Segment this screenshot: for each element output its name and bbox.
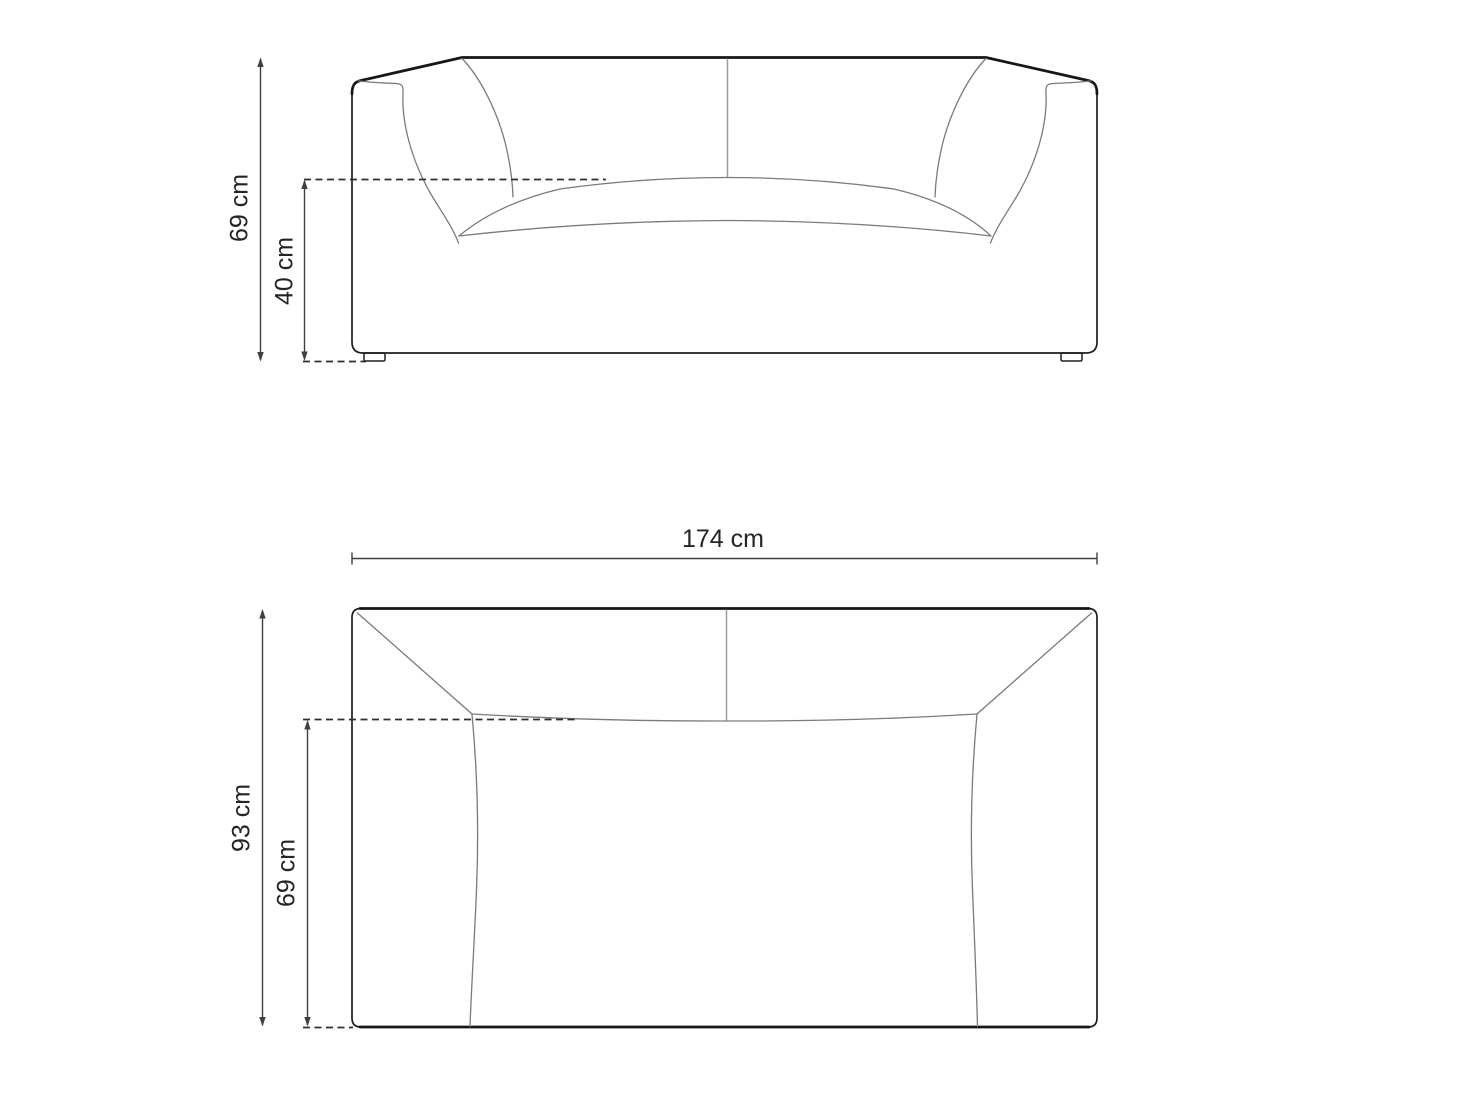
top-overall-depth-label: 93 cm: [228, 784, 256, 852]
front-sofa-top-edge: [352, 58, 1097, 95]
front-seat-height-arrow-bottom: [301, 352, 307, 362]
width-label: 174 cm: [682, 525, 764, 553]
front-right-foot: [1061, 353, 1082, 361]
front-sofa-outline: [352, 58, 1097, 354]
top-sofa-outline: [352, 609, 1097, 1028]
front-left-back-seam: [462, 59, 513, 198]
top-overall-depth-dimension: 93 cm: [228, 609, 266, 1027]
front-seat-front-curve: [459, 221, 991, 237]
front-overall-height-arrow-bottom: [257, 352, 263, 362]
diagram-svg: 69 cm 40 cm 174 cm: [0, 0, 1477, 1108]
front-overall-height-arrow-top: [257, 58, 263, 68]
front-left-foot: [364, 353, 385, 361]
top-seat-depth-label: 69 cm: [273, 839, 301, 907]
front-view: 69 cm 40 cm: [226, 58, 1097, 362]
top-left-corner-diagonal: [358, 613, 473, 714]
front-seat-height-label: 40 cm: [271, 237, 299, 305]
top-seat-depth-arrow-top: [304, 720, 310, 730]
front-right-back-seam: [935, 59, 986, 198]
sofa-dimension-diagram: 69 cm 40 cm 174 cm: [0, 0, 1477, 1108]
top-seat-depth-arrow-bottom: [304, 1017, 310, 1027]
front-seat-top-curve: [459, 178, 991, 237]
top-overall-depth-arrow-top: [259, 609, 265, 619]
top-left-seat-side: [470, 714, 478, 1027]
front-overall-height-dimension: 69 cm: [226, 58, 264, 362]
front-overall-height-label: 69 cm: [226, 174, 254, 242]
front-seat-height-dimension: 40 cm: [271, 180, 308, 362]
top-view: 93 cm 69 cm: [228, 609, 1097, 1028]
top-right-seat-side: [971, 714, 977, 1027]
width-dimension: 174 cm: [352, 525, 1097, 565]
top-right-corner-diagonal: [977, 613, 1092, 714]
top-seat-depth-dimension: 69 cm: [273, 720, 311, 1027]
top-overall-depth-arrow-bottom: [259, 1017, 265, 1027]
front-right-arm-contour: [991, 81, 1092, 243]
front-seat-height-arrow-top: [301, 180, 307, 190]
front-left-arm-contour: [358, 81, 459, 243]
